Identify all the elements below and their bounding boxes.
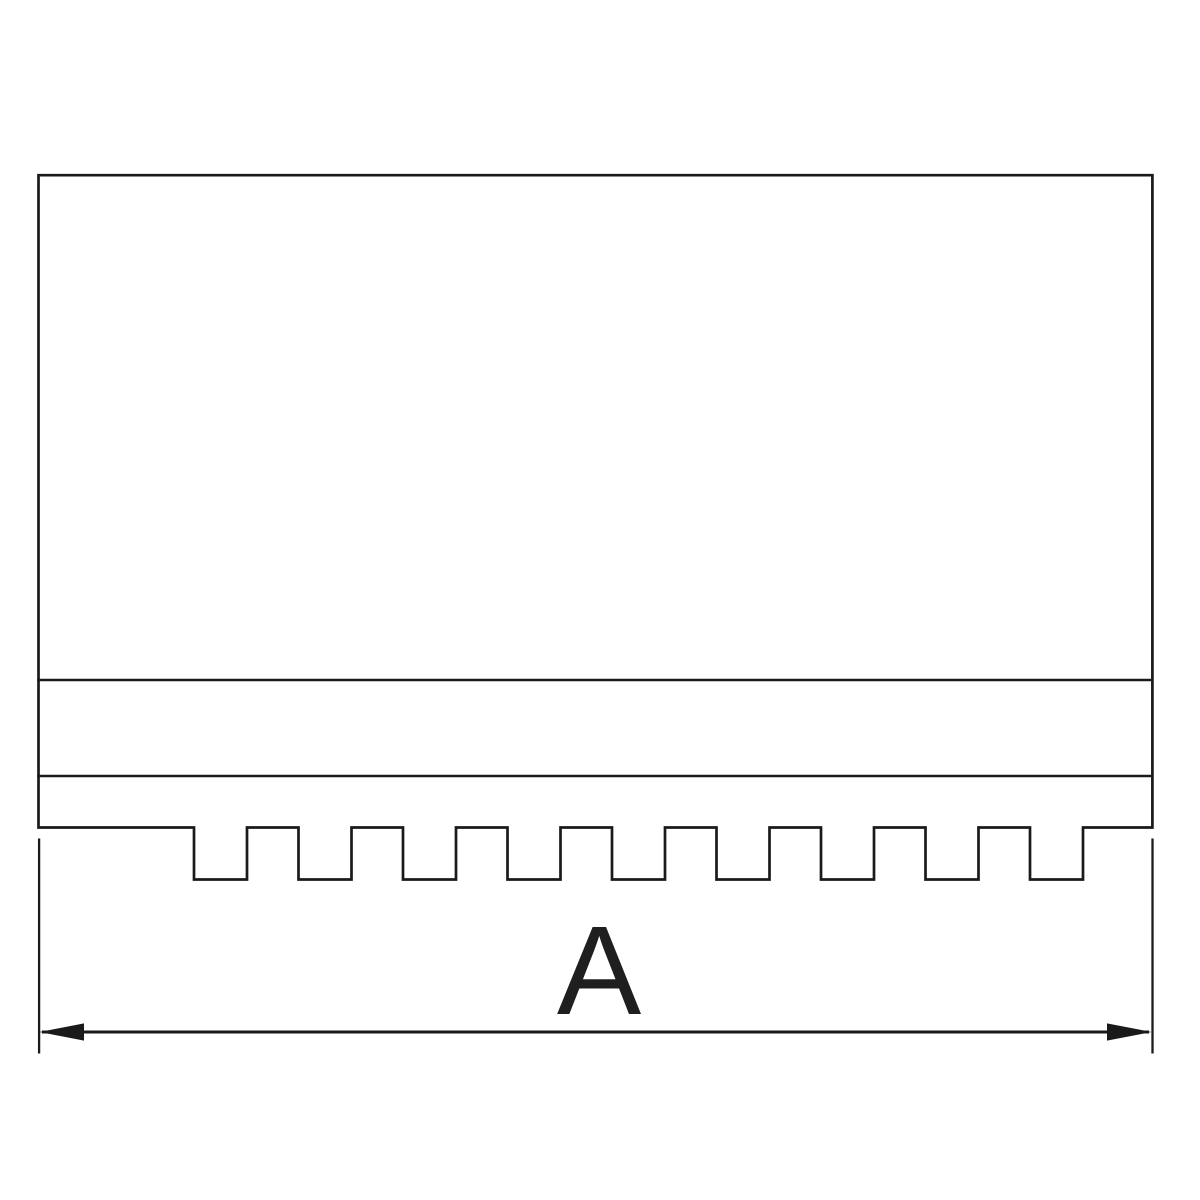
- svg-text:A: A: [557, 899, 642, 1041]
